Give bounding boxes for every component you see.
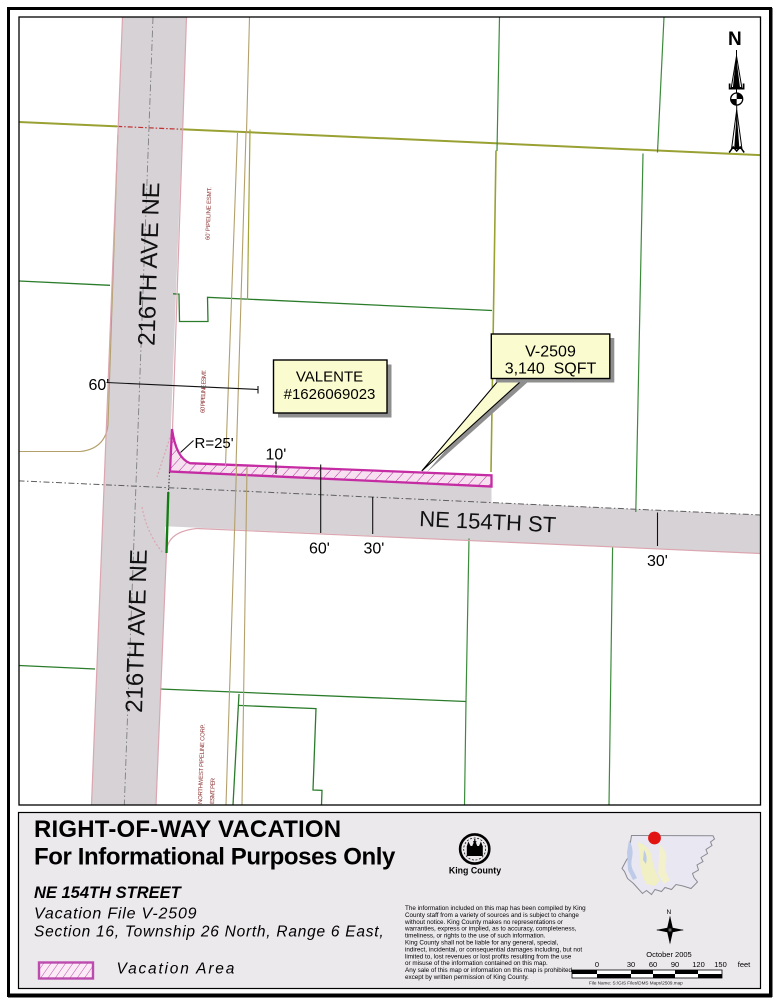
svg-text:except by written permission o: except by written permission of King Cou… — [405, 974, 529, 981]
svg-text:60: 60 — [649, 960, 657, 969]
svg-text:Vacation Area: Vacation Area — [117, 961, 237, 978]
svg-text:N: N — [728, 29, 742, 50]
svg-text:60': 60' — [309, 541, 330, 558]
svg-text:feet: feet — [738, 960, 751, 969]
svg-text:Vacation File V-2509: Vacation File V-2509 — [34, 906, 197, 923]
svg-text:10': 10' — [266, 447, 287, 464]
svg-text:ESMT. PER: ESMT. PER — [210, 777, 217, 804]
svg-text:30': 30' — [364, 541, 385, 558]
svg-text:216TH AVE NE: 216TH AVE NE — [134, 182, 166, 346]
svg-text:30: 30 — [627, 960, 635, 969]
svg-text:RIGHT-OF-WAY VACATION: RIGHT-OF-WAY VACATION — [34, 816, 341, 843]
svg-text:60' PIPELINE ESMT.: 60' PIPELINE ESMT. — [201, 370, 209, 414]
svg-text:90: 90 — [671, 960, 679, 969]
svg-text:216TH AVE NE: 216TH AVE NE — [121, 549, 153, 713]
svg-text:VALENTE: VALENTE — [296, 369, 363, 386]
svg-text:October 2005: October 2005 — [646, 950, 691, 959]
svg-text:R=25': R=25' — [195, 435, 234, 452]
svg-text:3,140 SQFT: 3,140 SQFT — [505, 361, 597, 378]
svg-text:V-2509: V-2509 — [525, 344, 576, 361]
svg-text:150: 150 — [714, 960, 727, 969]
svg-text:King County: King County — [449, 866, 501, 876]
svg-text:N: N — [667, 909, 672, 916]
svg-text:#1626069023: #1626069023 — [284, 386, 376, 403]
svg-text:NORTHWEST PIPELINE CORP.: NORTHWEST PIPELINE CORP. — [198, 724, 207, 804]
svg-text:120: 120 — [692, 960, 705, 969]
svg-text:File Name: S:\GIS Files\DMS M: File Name: S:\GIS Files\DMS Maps\2509.ma… — [589, 981, 683, 986]
svg-text:0: 0 — [595, 960, 599, 969]
svg-text:30': 30' — [647, 553, 668, 570]
svg-text:For Informational Purposes Onl: For Informational Purposes Only — [34, 844, 396, 871]
svg-text:60': 60' — [89, 377, 110, 394]
svg-text:NE 154TH STREET: NE 154TH STREET — [34, 884, 183, 902]
svg-text:Section 16, Township 26 North,: Section 16, Township 26 North, Range 6 E… — [34, 924, 384, 941]
svg-text:60' PIPELINE ESMT.: 60' PIPELINE ESMT. — [206, 187, 214, 241]
